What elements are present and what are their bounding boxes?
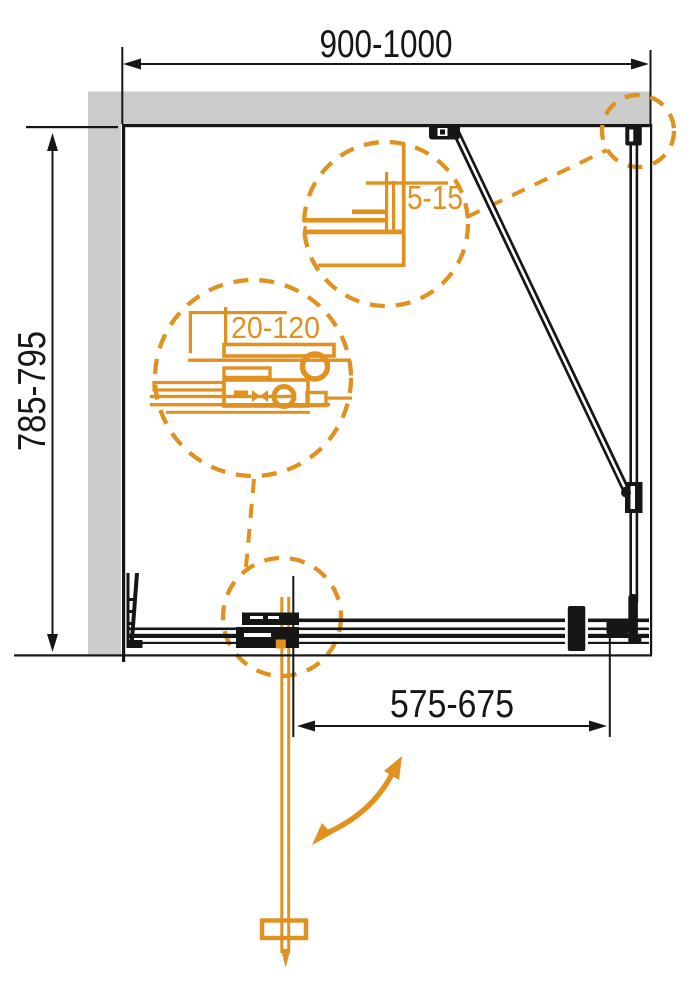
arrowhead-right-icon [631,59,649,70]
glass-line [629,128,632,602]
panel-outer-edge-line [650,124,652,655]
arrowhead-top-icon [47,133,58,151]
door-knob [565,604,588,654]
wall-face-left-line [122,124,125,662]
arrowhead-bottom-icon [47,634,58,652]
arrowhead-right-icon [589,721,607,732]
detail-label-wall-gap: 5-15 [407,179,463,216]
detail-label-profile: 20-120 [231,310,320,345]
glass-line [636,128,639,602]
fixed-glass-panel-right [625,124,652,655]
door-pivot-pin [276,640,286,649]
wall-top [88,92,650,125]
dimension-label-depth: 785-795 [11,331,54,451]
wall-left [88,92,121,656]
door-open-position [262,597,306,968]
extension-line-right [609,630,611,737]
tray-outer-edge-line [14,654,652,656]
door-glass-line [280,597,283,953]
detail-callouts: 5-15 20-120 [150,95,674,968]
leader-line-to-pivot [246,479,254,567]
corner-bracket [628,594,641,642]
detail-profile-drawing: 20-120 [150,307,352,414]
shower-enclosure-diagram: 900-1000 785-795 5-15 [0,0,688,1000]
door-swing-arrow-icon [312,756,402,845]
extension-line-left [121,47,123,124]
door-handle [262,921,306,939]
walls [88,92,652,663]
door-glass-tip [281,949,291,968]
arrowhead-left-icon [297,721,315,732]
door-pivot-block [236,613,299,649]
wall-face-top-line [122,124,652,127]
arrowhead-left-icon [123,59,141,70]
glass-top-bracket [625,126,642,146]
pivot-axis-extension-line [292,576,294,737]
dimension-label-door-width: 575-675 [390,683,514,726]
dimension-label-width: 900-1000 [320,23,453,66]
door-closed-edge-line [243,619,649,623]
extension-line-top [26,126,118,128]
door-glass-line [287,597,290,953]
extension-line-right [650,50,652,124]
diagram-svg: 900-1000 785-795 5-15 [0,0,688,1000]
